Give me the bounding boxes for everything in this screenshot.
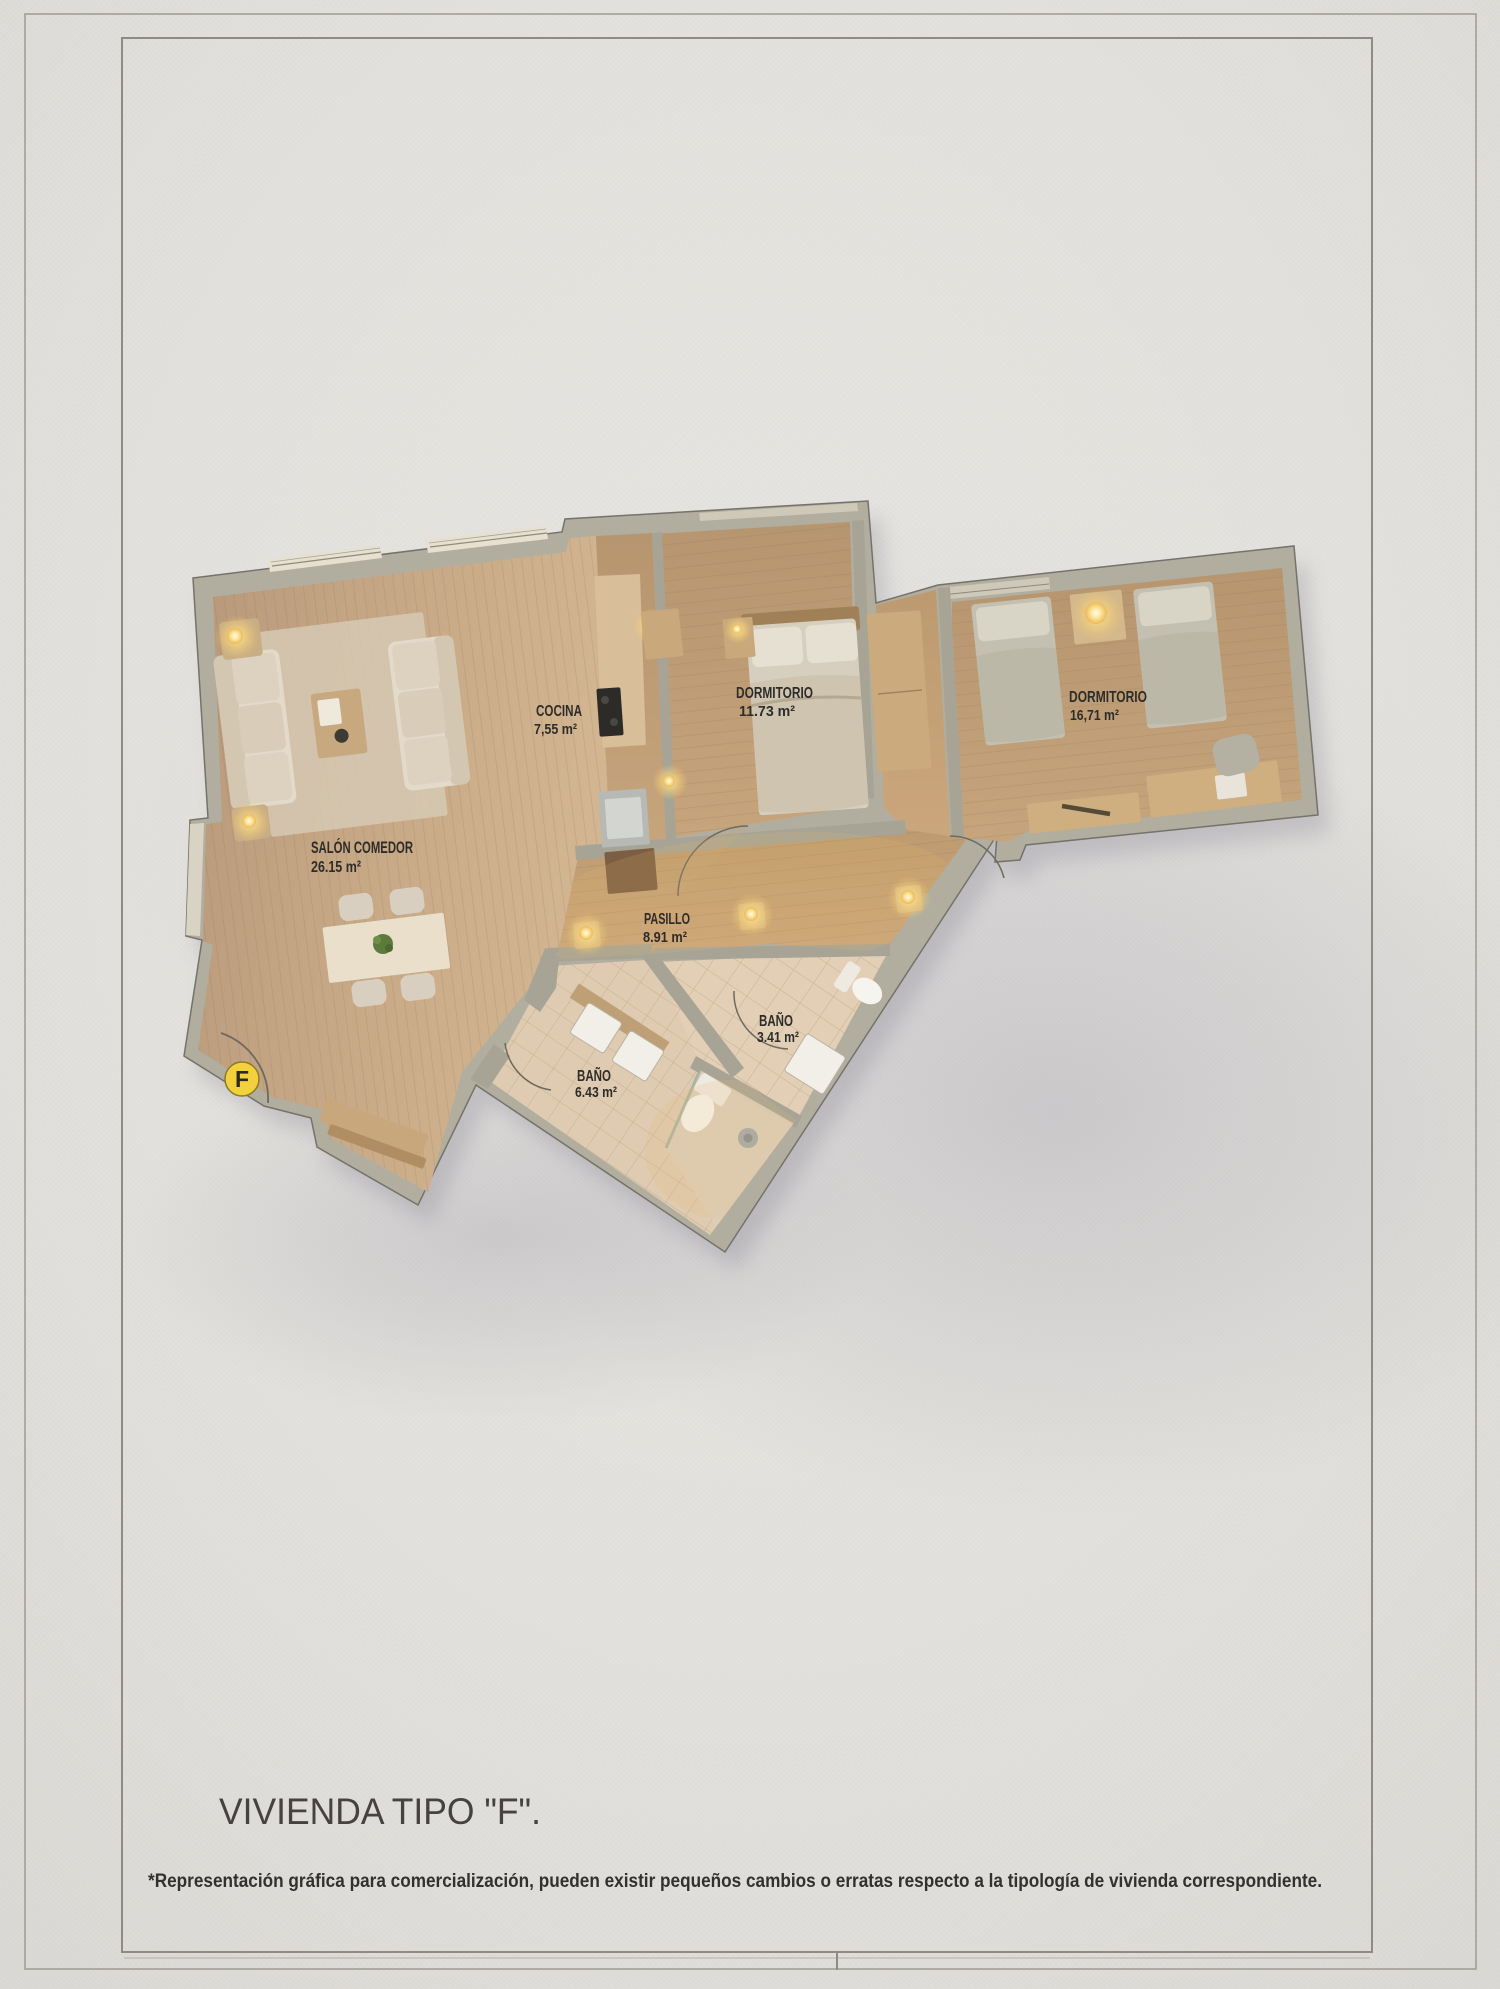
svg-text:BAÑO: BAÑO bbox=[577, 1065, 611, 1085]
svg-text:F: F bbox=[235, 1066, 249, 1092]
svg-text:26.15 m²: 26.15 m² bbox=[311, 859, 361, 876]
svg-text:16,71 m²: 16,71 m² bbox=[1070, 707, 1119, 724]
svg-text:8.91 m²: 8.91 m² bbox=[643, 929, 687, 946]
svg-text:6.43 m²: 6.43 m² bbox=[575, 1084, 617, 1101]
svg-text:DORMITORIO: DORMITORIO bbox=[736, 685, 813, 702]
svg-text:COCINA: COCINA bbox=[536, 703, 582, 720]
svg-text:PASILLO: PASILLO bbox=[644, 911, 690, 928]
svg-text:DORMITORIO: DORMITORIO bbox=[1069, 689, 1147, 706]
svg-text:BAÑO: BAÑO bbox=[759, 1010, 793, 1030]
svg-text:*Representación gráfica para c: *Representación gráfica para comercializ… bbox=[148, 1870, 1322, 1892]
svg-text:7,55 m²: 7,55 m² bbox=[534, 721, 577, 738]
svg-text:VIVIENDA TIPO "F".: VIVIENDA TIPO "F". bbox=[219, 1791, 541, 1832]
svg-text:SALÓN COMEDOR: SALÓN COMEDOR bbox=[311, 838, 413, 857]
svg-text:11.73 m²: 11.73 m² bbox=[739, 703, 795, 720]
svg-text:3.41 m²: 3.41 m² bbox=[757, 1029, 799, 1046]
